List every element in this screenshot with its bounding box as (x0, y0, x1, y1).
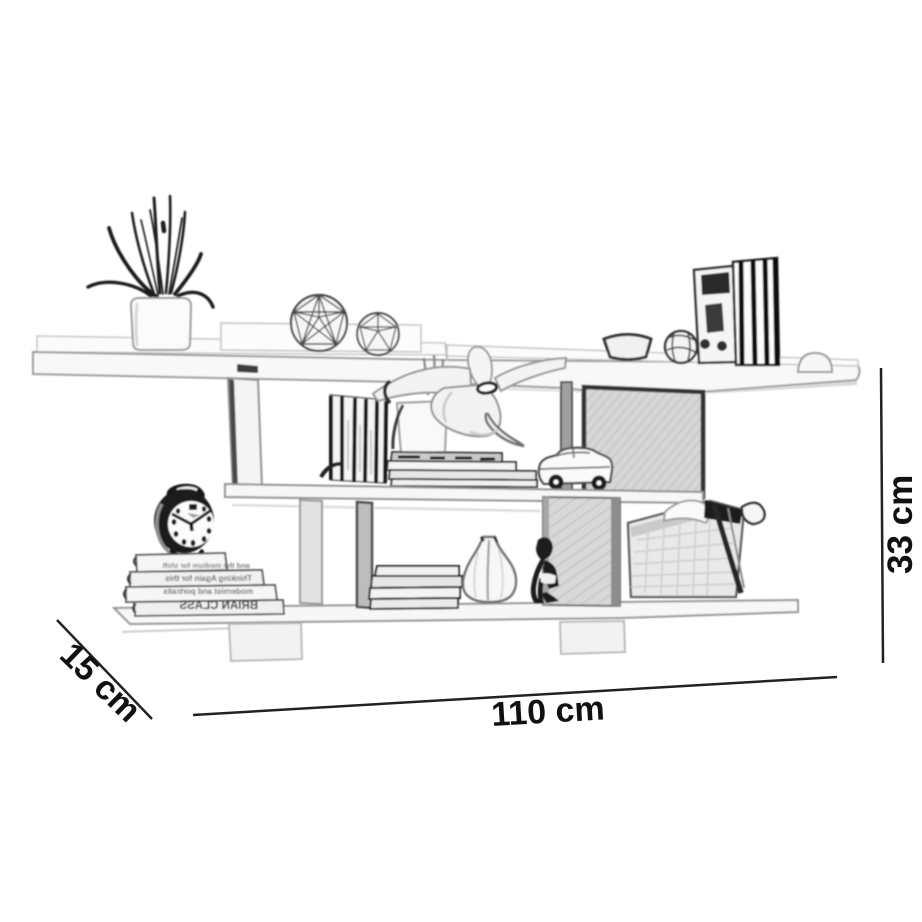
svg-text:modernist and portraits: modernist and portraits (163, 587, 253, 596)
svg-text:BRIAN CLASS: BRIAN CLASS (179, 600, 258, 612)
svg-text:and the medium for shift: and the medium for shift (162, 561, 250, 570)
svg-text:Thinking Again for this: Thinking Again for this (165, 574, 252, 583)
svg-text:33 cm: 33 cm (881, 475, 920, 574)
svg-text:110 cm: 110 cm (490, 689, 606, 734)
